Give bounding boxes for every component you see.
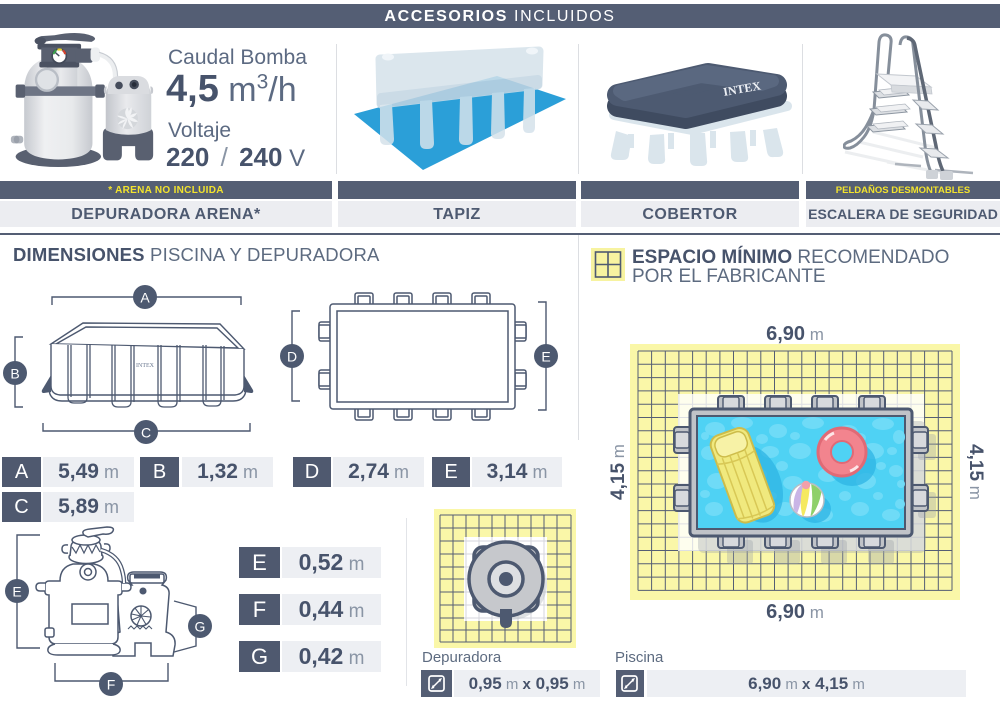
svg-text:D: D xyxy=(287,349,297,365)
svg-text:A: A xyxy=(140,290,150,306)
svg-text:E: E xyxy=(541,349,550,365)
svg-text:C: C xyxy=(141,425,151,441)
svg-text:B: B xyxy=(10,366,19,382)
svg-text:F: F xyxy=(107,677,116,693)
svg-text:G: G xyxy=(195,619,206,635)
svg-text:INTEX: INTEX xyxy=(136,363,155,369)
svg-text:E: E xyxy=(12,584,21,600)
